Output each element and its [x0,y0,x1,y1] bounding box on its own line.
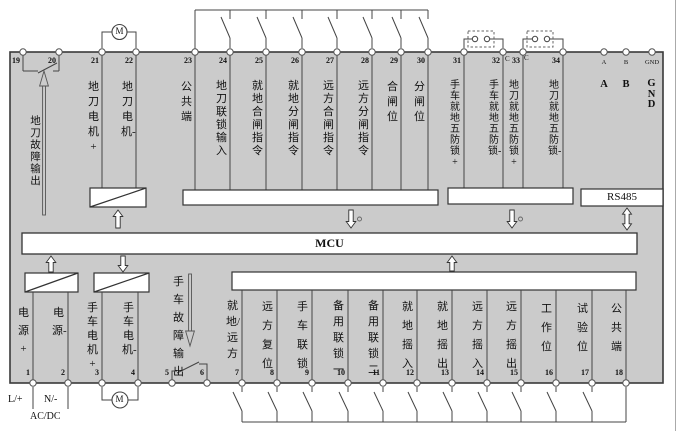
pin-b-small: B [618,59,634,66]
terminal-label-7: 就地/远方 [226,298,239,362]
pin-a-big: A [596,79,612,90]
bottom-common-bus [242,387,626,422]
trolley-fault-output-label: 手车故障输出 [172,273,185,381]
terminal-num-32: 32 [484,56,500,65]
terminal-label-34: 地刀就地五防锁- [548,80,560,157]
terminal-label-11: 备用联锁二 [367,298,380,378]
terminal-num-24: 24 [211,56,227,65]
terminal-num-20: 20 [40,56,56,65]
terminal-num-25: 25 [247,56,263,65]
terminal-label-9: 手车联锁 [296,298,309,374]
pin-gnd-small: GND [640,59,664,66]
trolley-motor-symbol: M [111,394,128,404]
terminal-num-6: 6 [189,368,204,377]
terminal-label-29: 合闸位 [386,80,399,125]
terminal-label-2: 电源- [52,304,65,340]
mcu-block: MCU [22,233,637,254]
earth-motor-symbol: M [111,26,128,36]
terminal-num-23: 23 [176,56,192,65]
terminal-label-17: 试验位 [576,300,589,357]
terminal-label-3: 手车电机+ [86,301,99,371]
terminal-num-34: 34 [544,56,560,65]
top-input-switches [221,10,428,48]
terminal-label-1: 电源+ [17,304,30,358]
terminal-label-30: 分闸位 [413,80,426,125]
pin-a-small: A [596,59,612,66]
terminal-num-19: 19 [4,56,20,65]
terminal-num-1: 1 [15,368,30,377]
terminal-num-27: 27 [318,56,334,65]
io-driver-blocks-bottom [25,272,636,292]
terminal-label-22: 地刀电机- [121,80,134,140]
earth-fault-output-label: 地刀故障输出 [29,116,42,188]
terminal-num-4: 4 [120,368,135,377]
terminal-label-26: 就地分闸指令 [287,80,300,158]
terminal-label-28: 远方分闸指令 [357,80,370,158]
terminal-label-18: 公共端 [610,300,623,357]
terminal-label-33: 地刀就地五防锁+ [508,80,520,168]
terminal-label-32: 手车就地五防锁- [488,80,500,157]
terminal-label-14: 远方摇入 [471,298,484,374]
bottom-position-switches [233,387,592,422]
terminal-label-16: 工作位 [540,300,553,357]
terminal-num-18: 18 [608,368,623,377]
terminal-num-5: 5 [154,368,169,377]
power-type-label: AC/DC [30,411,72,422]
wiring-diagram: 19 20 21 22 23 24 25 26 27 28 29 30 31 3… [0,0,679,431]
c-mark-1: C [505,55,510,63]
terminal-label-13: 就地摇出 [436,298,449,374]
terminal-label-27: 远方合闸指令 [322,80,335,158]
terminal-num-29: 29 [382,56,398,65]
terminal-num-31: 31 [445,56,461,65]
terminal-label-10: 备用联锁一 [332,298,345,378]
terminal-label-8: 远方复位 [261,298,274,374]
terminal-num-22: 22 [117,56,133,65]
terminal-num-2: 2 [50,368,65,377]
terminal-label-25: 就地合闸指令 [251,80,264,158]
power-line-label: L/+ [8,394,34,405]
pin-gnd-big: GND [647,79,656,111]
terminal-num-28: 28 [353,56,369,65]
terminal-label-21: 地刀电机+ [87,80,100,155]
c-mark-2: C [524,54,529,62]
terminal-label-12: 就地摇入 [401,298,414,374]
terminal-num-26: 26 [283,56,299,65]
terminal-num-30: 30 [409,56,425,65]
terminal-num-16: 16 [538,368,553,377]
terminal-num-21: 21 [83,56,99,65]
interlock-locks [464,31,563,48]
terminal-num-17: 17 [574,368,589,377]
terminal-label-23: 公共端 [180,80,193,125]
terminal-label-24: 地刀联锁输入 [215,80,228,158]
power-neutral-label: N/- [44,394,70,405]
rs485-block: RS485 [581,189,663,206]
terminal-num-7: 7 [224,368,239,377]
terminal-label-15: 远方摇出 [505,298,518,374]
terminal-label-4: 手车电机- [122,301,135,357]
terminal-label-31: 手车就地五防锁+ [449,80,461,168]
pin-b-big: B [618,79,634,90]
